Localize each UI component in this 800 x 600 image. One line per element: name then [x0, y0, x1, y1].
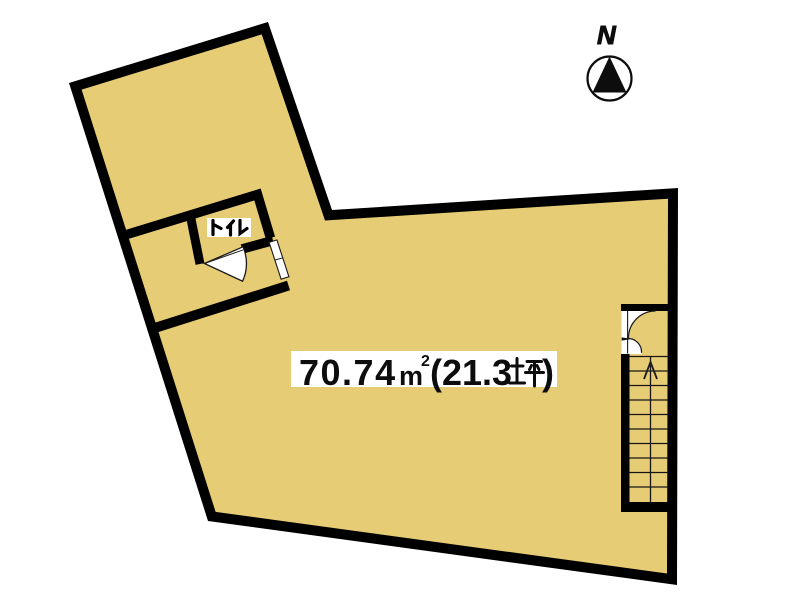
svg-text:N: N: [597, 20, 617, 50]
svg-text:m: m: [399, 361, 423, 391]
svg-text:(21.3: (21.3: [430, 352, 512, 393]
svg-text:): ): [542, 352, 554, 393]
svg-text:2: 2: [421, 353, 430, 370]
svg-text:70.74: 70.74: [299, 352, 397, 393]
